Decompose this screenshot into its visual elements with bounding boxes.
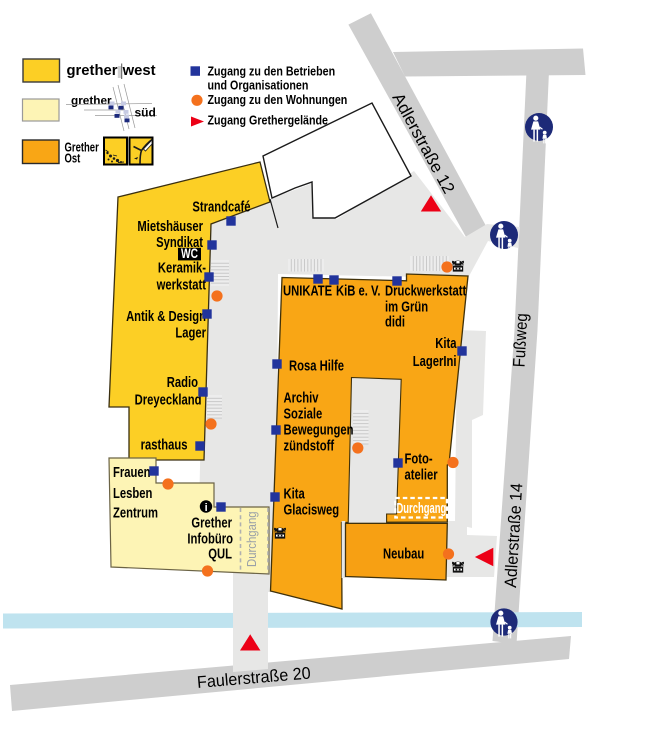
svg-text:UNIKATE: UNIKATE [283,282,332,299]
svg-text:Lager: Lager [175,324,206,341]
svg-text:Neubau: Neubau [383,545,424,562]
svg-text:Lesben: Lesben [113,484,152,501]
svg-text:Zugang zu den Wohnungen: Zugang zu den Wohnungen [208,92,348,107]
svg-text:Keramik-: Keramik- [158,259,206,276]
svg-text:i: i [205,502,208,514]
svg-text:west: west [122,63,156,79]
svg-text:Zentrum: Zentrum [113,504,158,521]
svg-text:süd: süd [135,106,156,120]
svg-text:und Organisationen: und Organisationen [208,77,309,92]
svg-text:Zugang Grethergelände: Zugang Grethergelände [208,113,329,128]
svg-text:Kita: Kita [435,334,457,351]
svg-text:Mietshäuser: Mietshäuser [137,217,203,234]
svg-text:Fußweg: Fußweg [511,313,532,368]
svg-text:Kita: Kita [284,485,306,502]
svg-text:Glacisweg: Glacisweg [284,501,340,518]
svg-text:grether: grether [71,94,112,108]
svg-text:rasthaus: rasthaus [141,436,188,453]
svg-text:Strandcafé: Strandcafé [192,198,250,215]
svg-text:Soziale: Soziale [284,405,323,422]
svg-text:Foto-: Foto- [405,450,433,467]
svg-text:werkstatt: werkstatt [156,276,207,293]
svg-text:Durchgang: Durchgang [397,500,447,517]
svg-text:Bewegungen: Bewegungen [284,421,354,438]
svg-text:Rosa Hilfe: Rosa Hilfe [289,357,344,374]
svg-text:atelier: atelier [405,466,438,483]
svg-text:Ost: Ost [65,152,81,166]
svg-text:grether: grether [67,63,118,79]
svg-text:zündstoff: zündstoff [284,437,335,454]
svg-text:Zugang zu den Betrieben: Zugang zu den Betrieben [208,63,336,78]
svg-text:Dreyeckland: Dreyeckland [135,391,202,408]
svg-text:KiB e. V.: KiB e. V. [336,282,381,299]
svg-text:didi: didi [385,313,405,330]
svg-text:QUL: QUL [208,545,232,562]
svg-text:Archiv: Archiv [284,389,319,406]
svg-text:Antik & Design: Antik & Design [126,307,206,324]
svg-text:Grether: Grether [191,514,232,531]
svg-text:Durchgang: Durchgang [244,511,259,567]
svg-text:Frauen: Frauen [113,463,150,480]
svg-text:LagerIni: LagerIni [413,352,457,369]
svg-text:Radio: Radio [167,373,198,390]
